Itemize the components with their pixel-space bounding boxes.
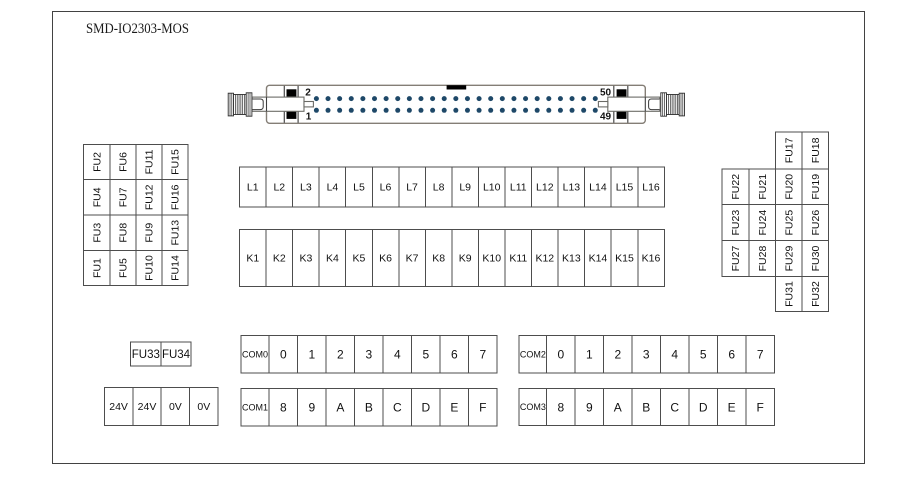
svg-text:FU11: FU11: [144, 149, 156, 174]
svg-text:SMD-IO2303-MOS: SMD-IO2303-MOS: [86, 21, 189, 37]
svg-text:FU29: FU29: [783, 246, 795, 272]
svg-text:K8: K8: [432, 253, 445, 265]
svg-text:L10: L10: [483, 182, 501, 194]
svg-text:3: 3: [366, 348, 373, 362]
svg-text:FU21: FU21: [757, 174, 769, 200]
svg-text:9: 9: [586, 400, 593, 414]
svg-text:K13: K13: [562, 253, 581, 265]
svg-text:K12: K12: [535, 253, 554, 265]
svg-text:9: 9: [309, 401, 316, 415]
svg-text:D: D: [422, 401, 431, 415]
svg-text:E: E: [450, 401, 458, 415]
svg-text:4: 4: [394, 348, 401, 362]
svg-text:24V: 24V: [138, 401, 157, 413]
svg-text:D: D: [699, 400, 708, 414]
svg-text:FU9: FU9: [144, 223, 156, 243]
svg-text:L5: L5: [353, 182, 365, 194]
svg-text:L2: L2: [273, 182, 285, 194]
svg-text:F: F: [756, 400, 763, 414]
svg-text:5: 5: [423, 348, 430, 362]
svg-text:K11: K11: [509, 253, 527, 265]
svg-text:FU34: FU34: [162, 349, 191, 361]
svg-text:L12: L12: [536, 182, 554, 194]
svg-text:COM1: COM1: [242, 402, 268, 412]
svg-text:L1: L1: [247, 182, 259, 194]
svg-text:FU23: FU23: [730, 210, 742, 236]
svg-text:FU31: FU31: [783, 281, 795, 307]
svg-text:K15: K15: [615, 253, 634, 265]
svg-text:K3: K3: [299, 253, 312, 265]
svg-text:FU17: FU17: [783, 137, 795, 163]
svg-text:FU8: FU8: [118, 223, 130, 243]
svg-text:L13: L13: [563, 182, 581, 194]
svg-text:8: 8: [557, 400, 564, 414]
svg-text:24V: 24V: [109, 401, 128, 413]
svg-text:FU14: FU14: [170, 255, 182, 281]
svg-text:FU5: FU5: [118, 258, 130, 278]
svg-text:FU18: FU18: [810, 137, 822, 163]
svg-text:COM0: COM0: [242, 350, 268, 360]
svg-text:FU33: FU33: [132, 349, 160, 361]
svg-text:L14: L14: [589, 182, 607, 194]
svg-text:K14: K14: [589, 253, 608, 265]
svg-text:FU32: FU32: [810, 281, 822, 307]
svg-text:L3: L3: [300, 182, 312, 194]
svg-text:E: E: [728, 400, 736, 414]
svg-text:FU22: FU22: [730, 174, 742, 200]
svg-text:5: 5: [700, 348, 707, 362]
svg-text:FU6: FU6: [118, 152, 130, 172]
svg-text:FU1: FU1: [91, 258, 103, 278]
svg-text:K6: K6: [379, 253, 392, 265]
svg-text:2: 2: [305, 88, 311, 99]
svg-text:FU16: FU16: [170, 184, 182, 210]
svg-text:0: 0: [280, 348, 287, 362]
svg-text:2: 2: [614, 348, 621, 362]
svg-text:L15: L15: [616, 182, 634, 194]
svg-text:B: B: [642, 400, 650, 414]
svg-text:K5: K5: [353, 253, 366, 265]
svg-text:FU2: FU2: [91, 152, 103, 172]
svg-text:4: 4: [671, 348, 678, 362]
svg-text:1: 1: [306, 112, 312, 123]
svg-text:FU26: FU26: [810, 210, 822, 236]
svg-text:K2: K2: [273, 253, 286, 265]
svg-text:L4: L4: [327, 182, 339, 194]
svg-text:K4: K4: [326, 253, 339, 265]
svg-text:B: B: [365, 401, 373, 415]
svg-text:FU24: FU24: [757, 210, 769, 236]
svg-text:FU7: FU7: [118, 187, 130, 207]
svg-text:1: 1: [586, 348, 593, 362]
svg-text:FU3: FU3: [91, 223, 103, 243]
svg-text:K10: K10: [482, 253, 501, 265]
svg-text:0V: 0V: [197, 401, 210, 413]
svg-text:COM2: COM2: [520, 350, 546, 360]
svg-text:6: 6: [451, 348, 458, 362]
svg-text:49: 49: [600, 112, 612, 123]
svg-text:K16: K16: [642, 253, 661, 265]
svg-text:FU15: FU15: [170, 149, 182, 175]
svg-text:0V: 0V: [169, 401, 182, 413]
svg-text:FU20: FU20: [783, 174, 795, 200]
svg-text:K1: K1: [246, 253, 259, 265]
svg-text:L11: L11: [510, 182, 527, 194]
svg-text:L9: L9: [459, 182, 471, 194]
svg-text:FU25: FU25: [783, 210, 795, 236]
svg-text:FU30: FU30: [810, 246, 822, 272]
svg-text:A: A: [336, 401, 344, 415]
svg-text:FU10: FU10: [144, 255, 156, 281]
svg-text:FU27: FU27: [730, 246, 742, 272]
svg-text:7: 7: [757, 348, 764, 362]
svg-text:L8: L8: [433, 182, 445, 194]
svg-text:FU13: FU13: [170, 220, 182, 246]
svg-text:FU19: FU19: [810, 174, 822, 200]
svg-text:FU4: FU4: [91, 187, 103, 207]
svg-text:FU28: FU28: [757, 246, 769, 272]
svg-text:K7: K7: [406, 253, 419, 265]
svg-text:L6: L6: [380, 182, 392, 194]
svg-text:L16: L16: [642, 182, 660, 194]
svg-text:C: C: [393, 401, 402, 415]
svg-text:A: A: [614, 400, 622, 414]
svg-text:0: 0: [557, 348, 564, 362]
svg-text:1: 1: [309, 348, 316, 362]
svg-text:7: 7: [480, 348, 487, 362]
svg-text:3: 3: [643, 348, 650, 362]
svg-text:FU12: FU12: [144, 184, 156, 210]
svg-text:6: 6: [728, 348, 735, 362]
svg-text:F: F: [479, 401, 486, 415]
svg-text:COM3: COM3: [520, 402, 546, 412]
svg-text:L7: L7: [406, 182, 418, 194]
svg-text:8: 8: [280, 401, 287, 415]
svg-text:2: 2: [337, 348, 344, 362]
svg-text:K9: K9: [459, 253, 472, 265]
svg-text:C: C: [670, 400, 679, 414]
svg-text:50: 50: [600, 88, 612, 99]
